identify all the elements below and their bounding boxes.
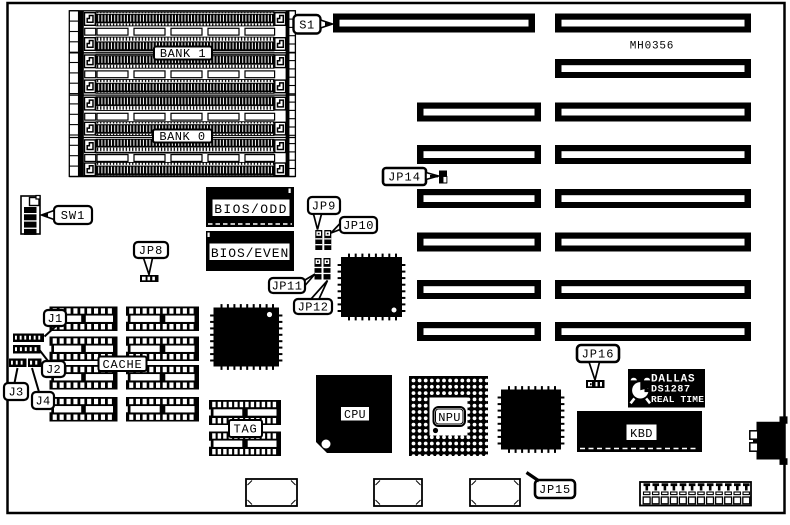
- svg-text:JP14: JP14: [388, 171, 421, 185]
- svg-text:J2: J2: [46, 363, 61, 377]
- svg-text:JP10: JP10: [343, 219, 374, 233]
- svg-text:J4: J4: [35, 395, 50, 409]
- svg-text:JP16: JP16: [582, 348, 615, 362]
- svg-text:REAL TIME: REAL TIME: [651, 394, 704, 405]
- svg-text:JP9: JP9: [312, 200, 337, 214]
- svg-text:JP12: JP12: [298, 301, 329, 315]
- svg-text:MH0356: MH0356: [630, 41, 674, 53]
- svg-text:JP8: JP8: [139, 244, 164, 258]
- svg-text:CACHE: CACHE: [102, 358, 142, 372]
- svg-text:TAG: TAG: [233, 423, 257, 437]
- svg-text:JP15: JP15: [539, 483, 571, 497]
- svg-text:CPU: CPU: [344, 409, 366, 422]
- svg-text:J3: J3: [8, 386, 23, 400]
- svg-text:J1: J1: [47, 312, 62, 326]
- svg-text:NPU: NPU: [438, 411, 461, 425]
- svg-text:BANK 0: BANK 0: [159, 130, 205, 144]
- svg-text:BIOS/EVEN: BIOS/EVEN: [211, 246, 289, 261]
- svg-text:JP11: JP11: [272, 280, 303, 294]
- svg-text:SW1: SW1: [61, 209, 86, 223]
- svg-text:BANK 1: BANK 1: [160, 47, 206, 61]
- svg-text:S1: S1: [299, 18, 314, 32]
- svg-text:KBD: KBD: [630, 427, 653, 441]
- svg-text:BIOS/ODD: BIOS/ODD: [214, 202, 288, 217]
